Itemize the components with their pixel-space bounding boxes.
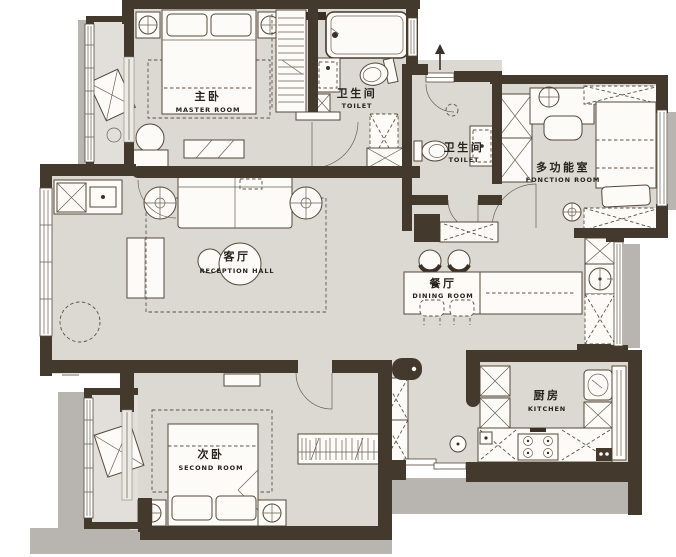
room-label-function-zh: 多功能室 [536,160,590,174]
room-label-master-en: MASTER ROOM [176,106,241,114]
bed-pillow [602,185,651,207]
stool [450,436,466,452]
hall-closet [367,148,403,168]
tall-cabinet [612,366,626,460]
kitchen-island [480,272,582,314]
room-label-function-en: FONCTION ROOM [526,176,600,184]
window-balcony-bottom-left [84,398,93,518]
room-label-living-zh: 客厅 [223,249,251,263]
window-living-left [40,188,52,336]
fridge [584,370,612,400]
master-nightstand-left [136,12,160,38]
room-label-dining-zh: 餐厅 [429,276,457,290]
sofa [178,176,292,228]
room-label-toilet2-zh: 卫生间 [444,140,485,154]
window-master-balcony-door [124,57,134,142]
room-label-living-en: RECEPTION HALL [200,267,275,275]
window-bathroom [408,18,417,56]
window-balcony-top-left [85,24,94,162]
side-table-left [144,187,176,219]
room-label-dining-en: DINING ROOM [412,292,473,300]
bed-pillow [167,14,207,36]
room-label-toilet2-en: TOILET [449,156,480,164]
second-nightstand-right [258,500,286,526]
room-label-toilet1-en: TOILET [342,102,373,110]
room-label-toilet1-zh: 卫生间 [337,86,378,100]
round-stool [563,203,581,221]
tv-console [224,374,260,386]
bed-pillow [172,496,212,520]
second-bed [168,424,258,526]
master-bench [184,140,244,158]
floor-plan-svg: 主卧 MASTER ROOM [0,0,676,557]
bed-pillow [211,14,251,36]
bed-pillow [216,496,256,520]
kitchen-counter [478,428,612,462]
shelf [296,112,340,120]
water-heater [585,264,615,294]
side-cabinet [127,238,164,298]
window-function-right [657,110,667,206]
laundry-counter [54,180,122,214]
bookshelf [298,434,380,464]
entrance-arrow-icon [435,44,445,54]
console-bench [440,222,498,242]
floor-plan-page: 主卧 MASTER ROOM [0,0,676,557]
room-label-kitchen-en: KITCHEN [528,405,566,413]
window-dining-right [614,242,623,346]
desk-chair [544,116,582,140]
side-table-right [290,187,322,219]
room-label-second-zh: 次卧 [198,447,225,461]
room-label-master-zh: 主卧 [195,89,222,103]
window-second-balcony-door [122,410,132,500]
room-label-kitchen-zh: 厨房 [534,388,561,402]
hall-wardrobe [498,94,532,182]
room-label-second-en: SECOND ROOM [179,464,244,472]
bathtub [326,12,408,58]
